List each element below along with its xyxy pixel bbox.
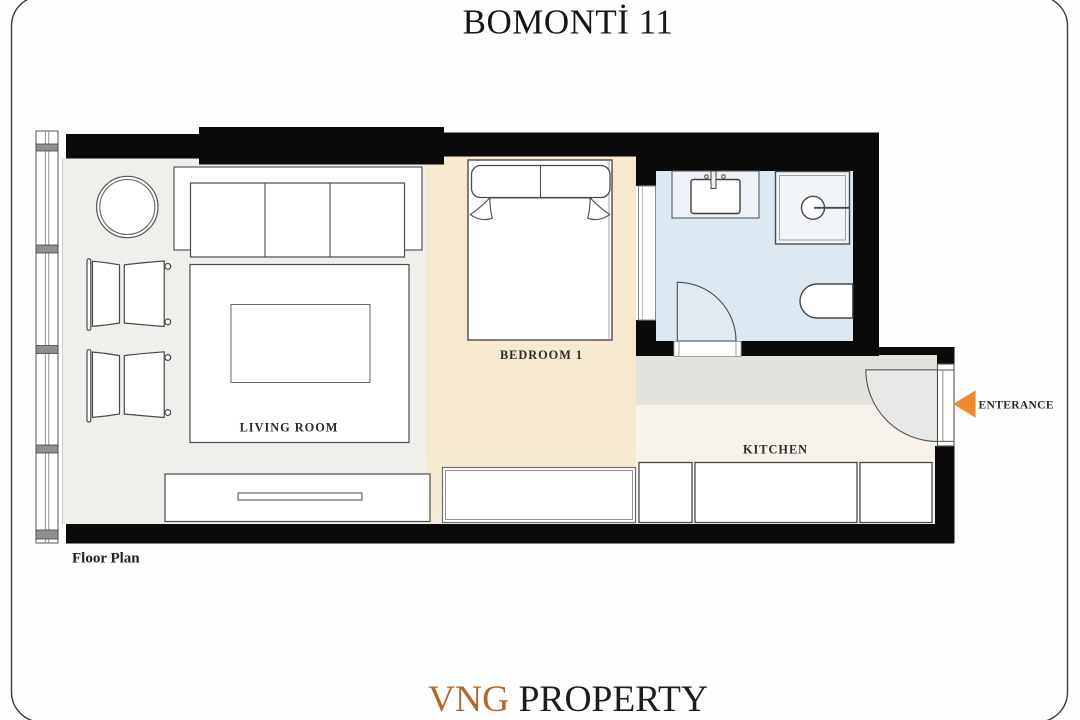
svg-text:Floor Plan: Floor Plan (72, 551, 140, 567)
svg-text:BOMONTİ 11: BOMONTİ 11 (463, 3, 674, 42)
svg-text:ENTERANCE: ENTERANCE (979, 400, 1054, 412)
svg-text:BEDROOM 1: BEDROOM 1 (500, 348, 583, 362)
svg-text:KITCHEN: KITCHEN (743, 443, 808, 457)
svg-text:LIVING ROOM: LIVING ROOM (240, 421, 339, 435)
svg-text:VNG PROPERTY: VNG PROPERTY (428, 679, 708, 720)
